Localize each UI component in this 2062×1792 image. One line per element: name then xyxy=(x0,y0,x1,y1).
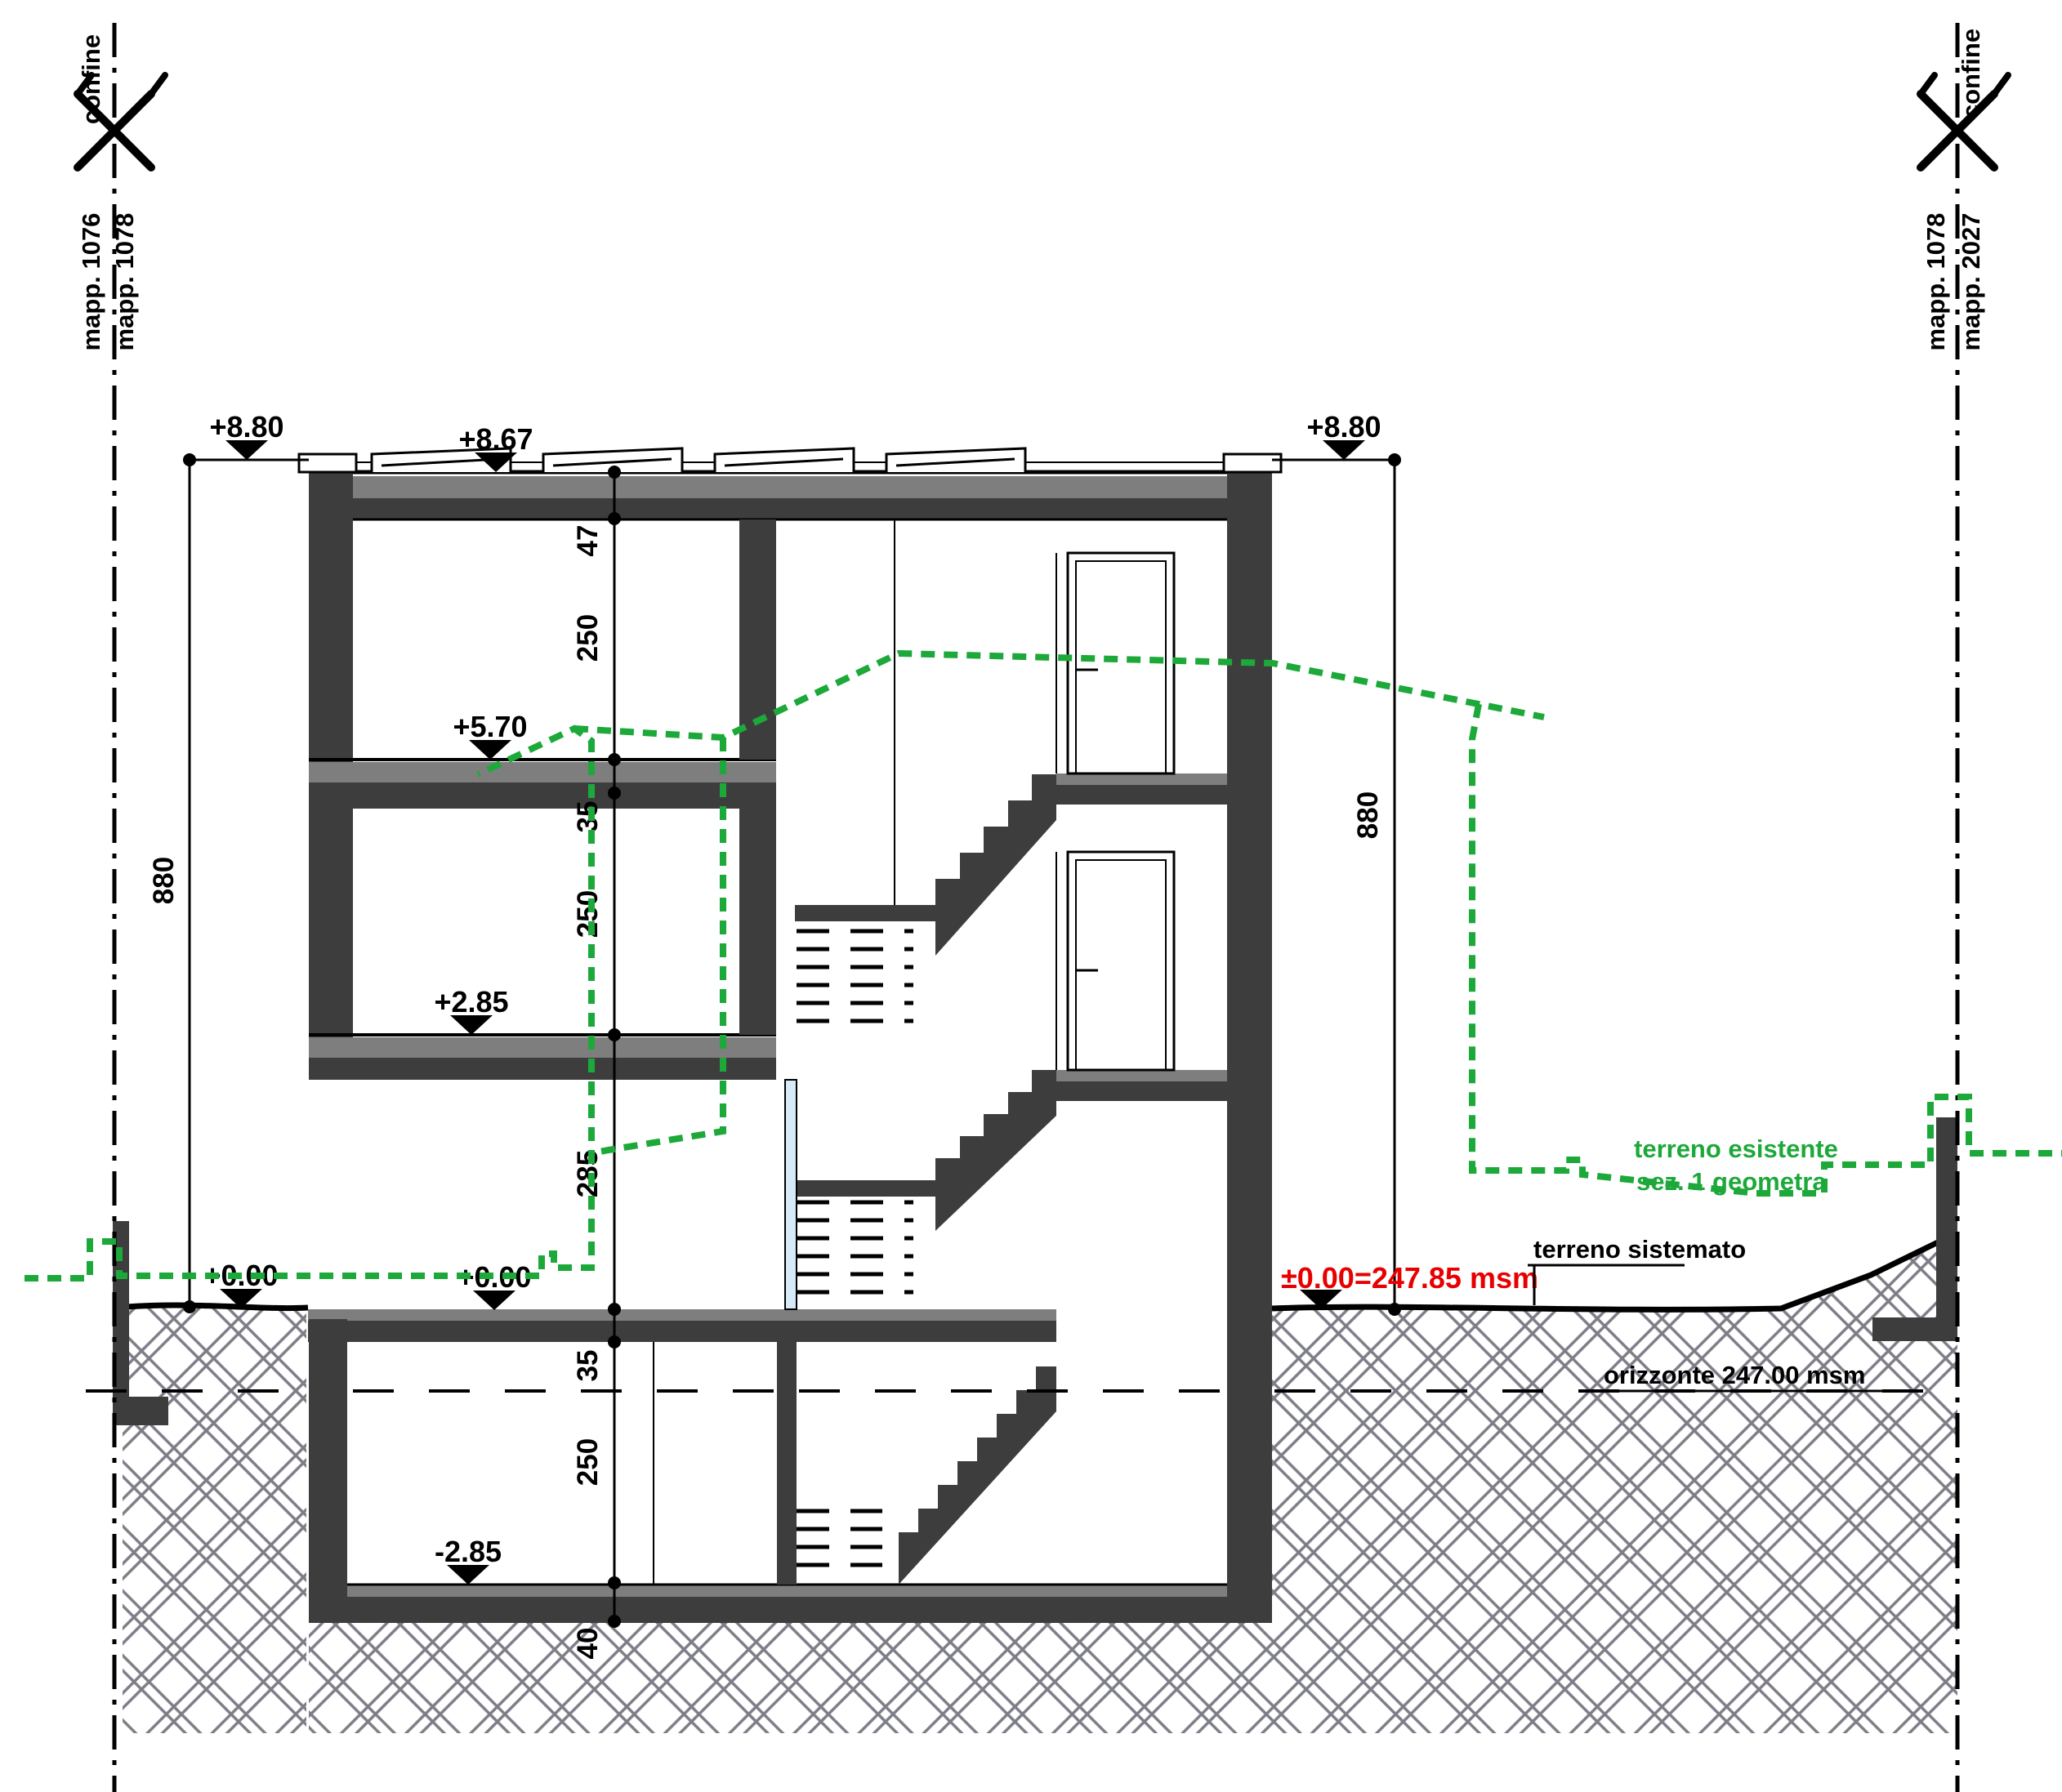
parcel-label-1076: mapp. 1076 xyxy=(77,213,105,351)
slab-570 xyxy=(309,760,776,809)
existing-terrain-label: terreno esistente sez. 1 geometra xyxy=(1634,1134,1838,1196)
stair-flight-middle xyxy=(935,1070,1056,1231)
level-text: +2.85 xyxy=(434,985,508,1019)
level-text: +5.70 xyxy=(453,710,527,743)
terreno-sistemato-label: terreno sistemato xyxy=(1528,1235,1746,1305)
dim-47: 47 xyxy=(572,525,604,557)
dim-250-a: 250 xyxy=(572,614,604,662)
level-triangle-icon xyxy=(447,1565,489,1585)
building-section xyxy=(299,448,1281,1623)
marker-ground-b: +0.00 xyxy=(457,1260,531,1310)
dim-250-c: 250 xyxy=(572,1438,604,1486)
dim-40: 40 xyxy=(572,1628,604,1660)
level-text: +8.67 xyxy=(458,422,533,456)
glass-wall xyxy=(785,1080,797,1309)
slab-000 xyxy=(308,1309,1056,1342)
door-mid-floor xyxy=(1068,852,1174,1070)
marker-roof-right: +8.80 xyxy=(1306,410,1381,460)
section-canvas: orizzonte 247.00 msm confine mapp. 1076 … xyxy=(0,0,2062,1792)
marker-floor2: +5.70 xyxy=(453,710,527,760)
stair-flight-top xyxy=(935,774,1056,956)
wall-right xyxy=(1227,466,1272,1621)
dim-880-right: 880 xyxy=(1352,791,1384,839)
marker-floor1: +2.85 xyxy=(434,985,508,1035)
marker-datum-red: ±0.00=247.85 msm xyxy=(1281,1261,1538,1309)
parcel-label-1078-left: mapp. 1078 xyxy=(110,213,139,351)
level-text: +8.80 xyxy=(209,410,283,444)
confine-label-right: confine xyxy=(1957,29,1985,118)
parcel-label-1078-right: mapp. 1078 xyxy=(1921,213,1950,351)
marker-roof-left: +8.80 xyxy=(209,410,283,460)
basement-wall-left xyxy=(309,1319,347,1621)
level-triangle-icon xyxy=(469,740,511,760)
marker-ground-a: +0.00 xyxy=(203,1259,278,1308)
stair-flight-basement xyxy=(899,1366,1056,1585)
parapet-cap-left xyxy=(299,454,356,472)
parapet-cap-right xyxy=(1224,454,1281,472)
dim-285: 285 xyxy=(572,1150,604,1197)
stair-landing-upper xyxy=(1056,773,1227,805)
terrain-text-1: terreno esistente xyxy=(1634,1134,1838,1163)
datum-red-text: ±0.00=247.85 msm xyxy=(1281,1261,1538,1295)
confine-label-left: confine xyxy=(77,34,105,124)
terrain-text-2: sez. 1 geometra xyxy=(1636,1167,1827,1196)
section-drawing: orizzonte 247.00 msm confine mapp. 1076 … xyxy=(0,0,2062,1792)
basement-floor xyxy=(309,1585,1272,1623)
level-triangle-icon xyxy=(450,1015,493,1035)
sistemato-text: terreno sistemato xyxy=(1533,1235,1746,1264)
level-triangle-icon xyxy=(1323,440,1365,460)
level-triangle-icon xyxy=(225,440,268,460)
level-triangle-icon xyxy=(473,1291,515,1310)
dim-880-left: 880 xyxy=(148,857,180,904)
dim-35-a: 35 xyxy=(572,801,604,833)
dim-250-b: 250 xyxy=(572,890,604,938)
hidden-stair-treads xyxy=(797,931,913,1565)
parcel-label-2027: mapp. 2027 xyxy=(1957,213,1985,351)
stair-halflanding-b xyxy=(795,1180,935,1197)
stair-landing-mid xyxy=(1056,1070,1227,1101)
level-text: +8.80 xyxy=(1306,410,1381,444)
slab-285 xyxy=(309,1035,776,1080)
level-text: -2.85 xyxy=(435,1535,502,1568)
marker-basement: -2.85 xyxy=(435,1535,502,1585)
stair-halflanding-a xyxy=(795,905,935,921)
horizon-label: orizzonte 247.00 msm xyxy=(1598,1361,1912,1391)
horizon-text: orizzonte 247.00 msm xyxy=(1604,1361,1865,1389)
dim-35-b: 35 xyxy=(572,1350,604,1382)
